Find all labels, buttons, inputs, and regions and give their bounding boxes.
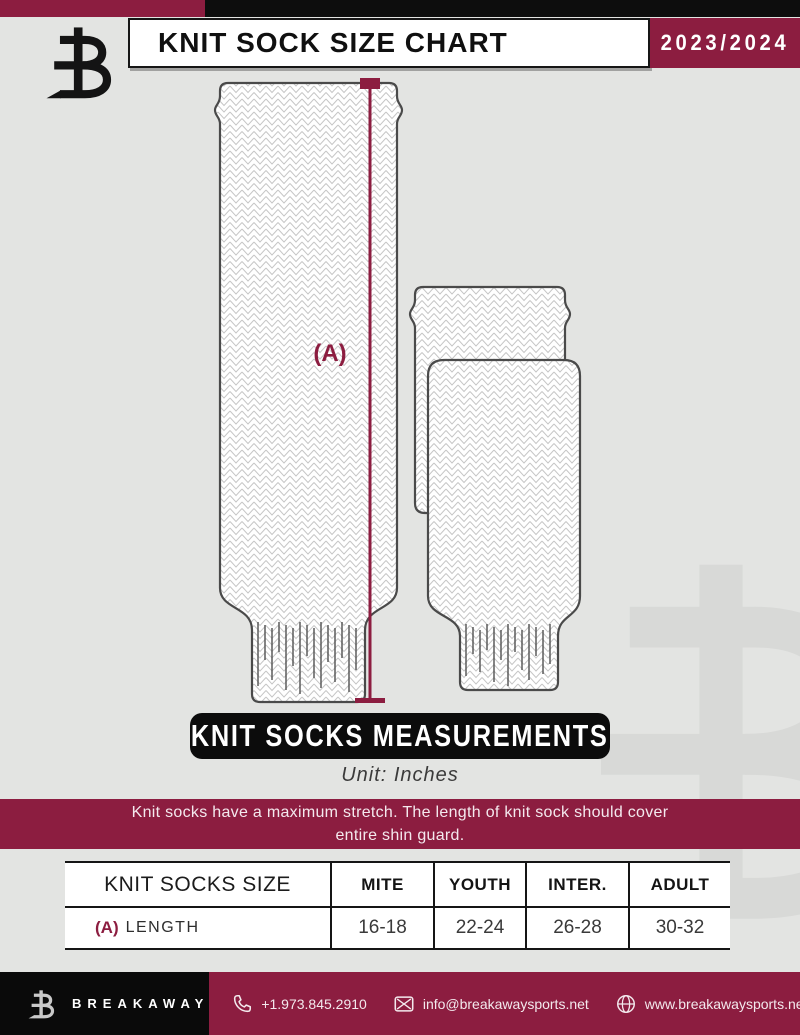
page-title: KNIT SOCK SIZE CHART xyxy=(158,27,508,59)
website-contact[interactable]: www.breakawaysports.net xyxy=(615,993,800,1015)
length-inter: 26-28 xyxy=(525,908,628,948)
footer-brand-block: BREAKAWAY xyxy=(0,972,209,1035)
row-label-length: (A) LENGTH xyxy=(65,908,330,948)
email-address: info@breakawaysports.net xyxy=(423,996,589,1012)
globe-icon xyxy=(615,993,637,1015)
phone-number: +1.973.845.2910 xyxy=(261,996,367,1012)
envelope-icon xyxy=(393,993,415,1015)
measure-label-a: (A) xyxy=(313,340,346,367)
title-box: KNIT SOCK SIZE CHART xyxy=(128,18,650,68)
note-line-2: entire shin guard. xyxy=(335,824,464,847)
column-header-adult: ADULT xyxy=(628,863,730,906)
length-mite: 16-18 xyxy=(330,908,433,948)
table-header-row: KNIT SOCKS SIZE MITE YOUTH INTER. ADULT xyxy=(65,863,730,908)
size-table-title: KNIT SOCKS SIZE xyxy=(65,863,330,906)
phone-icon xyxy=(231,993,253,1015)
column-header-inter: INTER. xyxy=(525,863,628,906)
column-header-mite: MITE xyxy=(330,863,433,906)
footer: BREAKAWAY +1.973.845.2910 info@breakaway… xyxy=(0,972,800,1035)
stretch-note-banner: Knit socks have a maximum stretch. The l… xyxy=(0,799,800,849)
brand-wordmark: BREAKAWAY xyxy=(72,996,209,1011)
unit-label: Unit: Inches xyxy=(190,764,610,787)
length-adult: 30-32 xyxy=(628,908,730,948)
column-header-youth: YOUTH xyxy=(433,863,525,906)
breakaway-logo-icon xyxy=(24,984,62,1024)
length-youth: 22-24 xyxy=(433,908,525,948)
season-badge: 2023/2024 xyxy=(650,18,800,68)
footer-contact-block: +1.973.845.2910 info@breakawaysports.net… xyxy=(209,972,800,1035)
strip-black xyxy=(205,0,800,17)
measurements-banner-label: KNIT SOCKS MEASUREMENTS xyxy=(191,718,609,754)
row-label-text: LENGTH xyxy=(126,919,200,937)
knit-socks-diagram: (A) xyxy=(170,72,630,712)
breakaway-logo-icon xyxy=(33,14,133,110)
sock-adult xyxy=(215,83,402,702)
row-key-a: (A) xyxy=(95,918,119,938)
table-row: (A) LENGTH 16-18 22-24 26-28 30-32 xyxy=(65,908,730,948)
knit-sock-size-chart-page: KNIT SOCK SIZE CHART 2023/2024 (A) KNIT xyxy=(0,0,800,1035)
season-label: 2023/2024 xyxy=(661,30,790,56)
email-contact[interactable]: info@breakawaysports.net xyxy=(393,993,589,1015)
measurements-banner: KNIT SOCKS MEASUREMENTS xyxy=(190,713,610,759)
size-table: KNIT SOCKS SIZE MITE YOUTH INTER. ADULT … xyxy=(65,861,730,950)
note-line-1: Knit socks have a maximum stretch. The l… xyxy=(132,801,669,824)
phone-contact[interactable]: +1.973.845.2910 xyxy=(231,993,367,1015)
sock-intermediate xyxy=(428,360,580,690)
website-url: www.breakawaysports.net xyxy=(645,996,800,1012)
